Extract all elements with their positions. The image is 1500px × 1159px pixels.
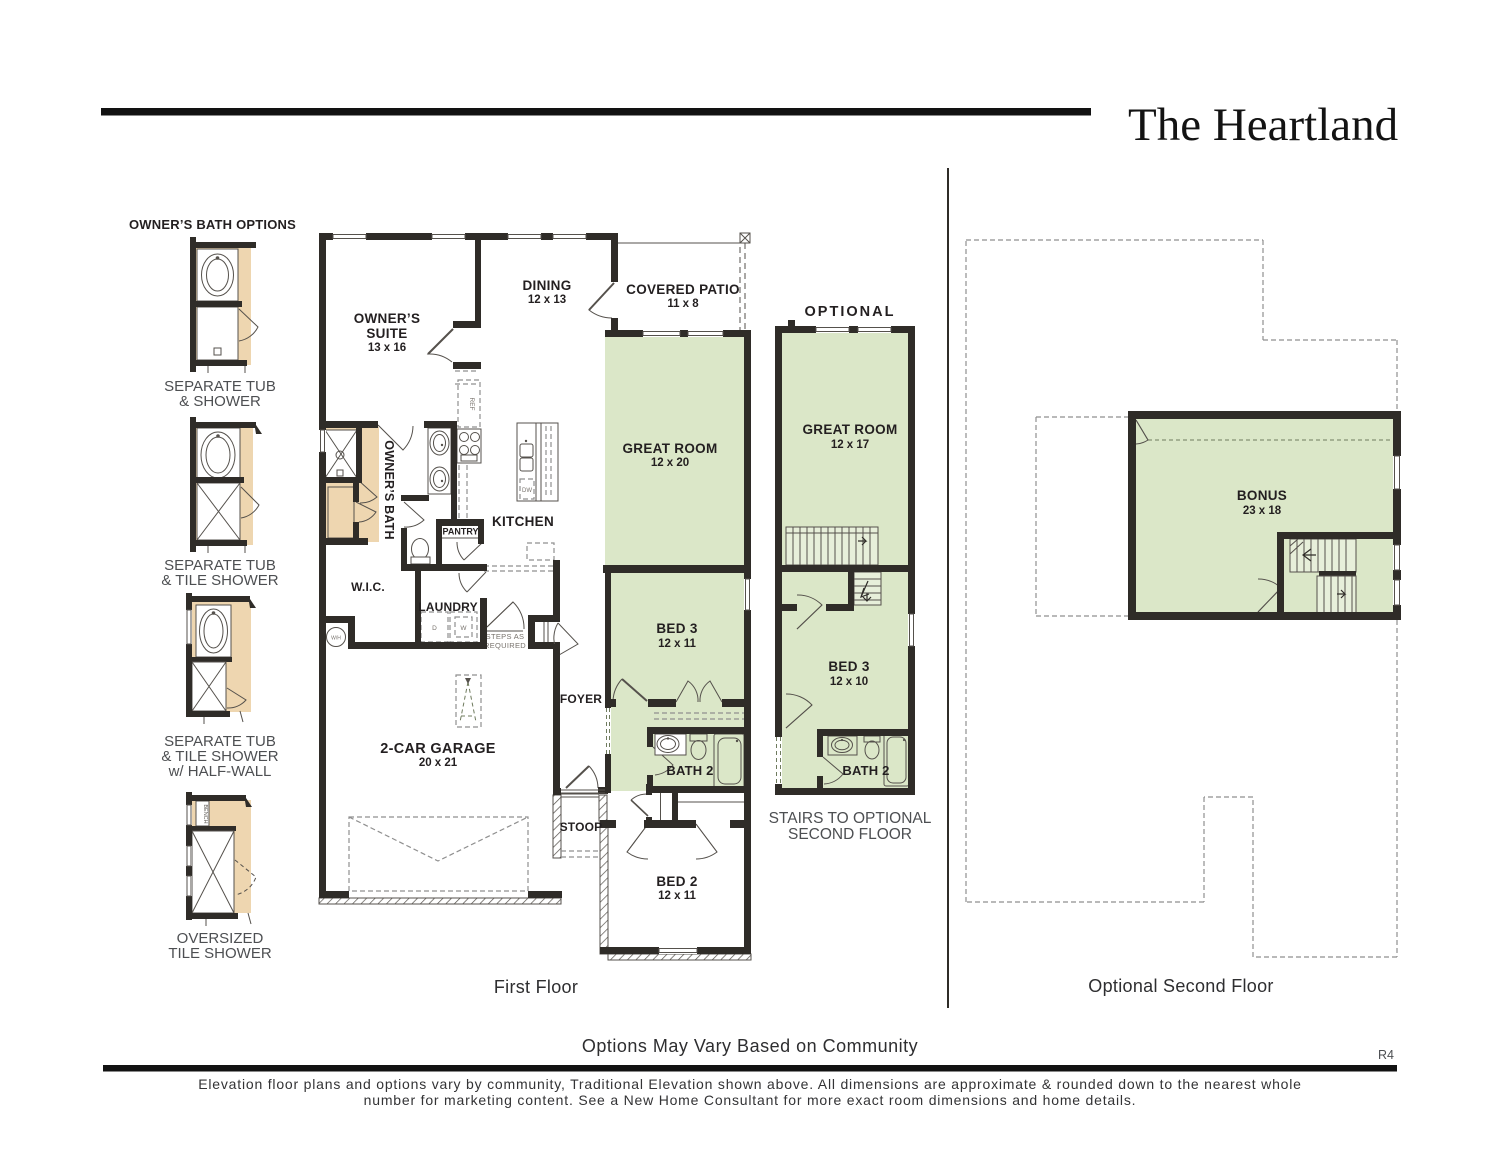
svg-text:12 x 11: 12 x 11 [658, 890, 696, 902]
svg-text:SUITE: SUITE [366, 326, 407, 341]
svg-text:First Floor: First Floor [494, 977, 578, 997]
svg-text:GREAT ROOM: GREAT ROOM [623, 441, 718, 456]
svg-text:BATH 2: BATH 2 [666, 763, 713, 778]
svg-text:12 x 17: 12 x 17 [831, 439, 869, 451]
svg-text:STEPS AS: STEPS AS [486, 632, 525, 641]
svg-text:FOYER: FOYER [560, 692, 602, 706]
svg-text:BENCH: BENCH [202, 804, 208, 823]
svg-text:REQUIRED: REQUIRED [484, 641, 526, 650]
svg-text:W/H: W/H [331, 636, 341, 642]
svg-text:STAIRS TO OPTIONAL: STAIRS TO OPTIONAL [769, 810, 932, 827]
svg-text:Optional Second Floor: Optional Second Floor [1088, 976, 1273, 996]
svg-text:REF: REF [468, 398, 475, 411]
svg-text:number for marketing content.: number for marketing content. See a New … [364, 1092, 1137, 1108]
svg-text:20 x 21: 20 x 21 [419, 757, 458, 769]
svg-text:12 x 10: 12 x 10 [830, 676, 868, 688]
svg-text:The Heartland: The Heartland [1128, 99, 1398, 151]
svg-text:R4: R4 [1378, 1048, 1394, 1062]
svg-text:W.I.C.: W.I.C. [351, 580, 385, 594]
svg-text:PANTRY: PANTRY [443, 527, 479, 537]
svg-text:OPTIONAL: OPTIONAL [805, 304, 896, 320]
svg-text:GREAT ROOM: GREAT ROOM [803, 422, 898, 437]
svg-text:DW: DW [522, 488, 532, 494]
svg-text:STOOP: STOOP [560, 820, 603, 834]
svg-text:OWNER’S: OWNER’S [354, 311, 421, 326]
svg-text:Options May Vary Based on Comm: Options May Vary Based on Community [582, 1036, 918, 1056]
svg-text:DINING: DINING [522, 278, 571, 293]
svg-text:D: D [432, 625, 437, 632]
svg-text:BONUS: BONUS [1237, 488, 1287, 503]
svg-text:12 x 20: 12 x 20 [651, 457, 689, 469]
svg-text:COVERED PATIO: COVERED PATIO [626, 282, 740, 297]
svg-text:Elevation floor plans and opti: Elevation floor plans and options vary b… [198, 1076, 1302, 1092]
svg-text:BATH 2: BATH 2 [842, 763, 889, 778]
svg-text:11 x 8: 11 x 8 [667, 298, 699, 310]
svg-text:23 x 18: 23 x 18 [1243, 505, 1282, 517]
svg-text:2-CAR GARAGE: 2-CAR GARAGE [380, 741, 496, 757]
svg-text:SECOND FLOOR: SECOND FLOOR [788, 826, 912, 843]
svg-text:KITCHEN: KITCHEN [492, 514, 554, 529]
svg-text:LAUNDRY: LAUNDRY [418, 600, 478, 614]
svg-text:12 x 11: 12 x 11 [658, 638, 696, 650]
svg-text:BED 2: BED 2 [656, 874, 697, 889]
svg-text:BED 3: BED 3 [828, 659, 869, 674]
svg-text:OWNER’S BATH: OWNER’S BATH [382, 440, 396, 539]
svg-text:12 x 13: 12 x 13 [528, 294, 566, 306]
svg-text:& SHOWER: & SHOWER [179, 393, 261, 410]
svg-text:TILE SHOWER: TILE SHOWER [168, 945, 272, 962]
svg-text:W: W [460, 625, 467, 632]
svg-text:13 x 16: 13 x 16 [368, 342, 406, 354]
svg-text:BED 3: BED 3 [656, 621, 697, 636]
svg-text:w/ HALF-WALL: w/ HALF-WALL [168, 763, 272, 780]
svg-text:& TILE SHOWER: & TILE SHOWER [161, 572, 278, 589]
svg-text:OWNER’S BATH OPTIONS: OWNER’S BATH OPTIONS [129, 217, 296, 232]
